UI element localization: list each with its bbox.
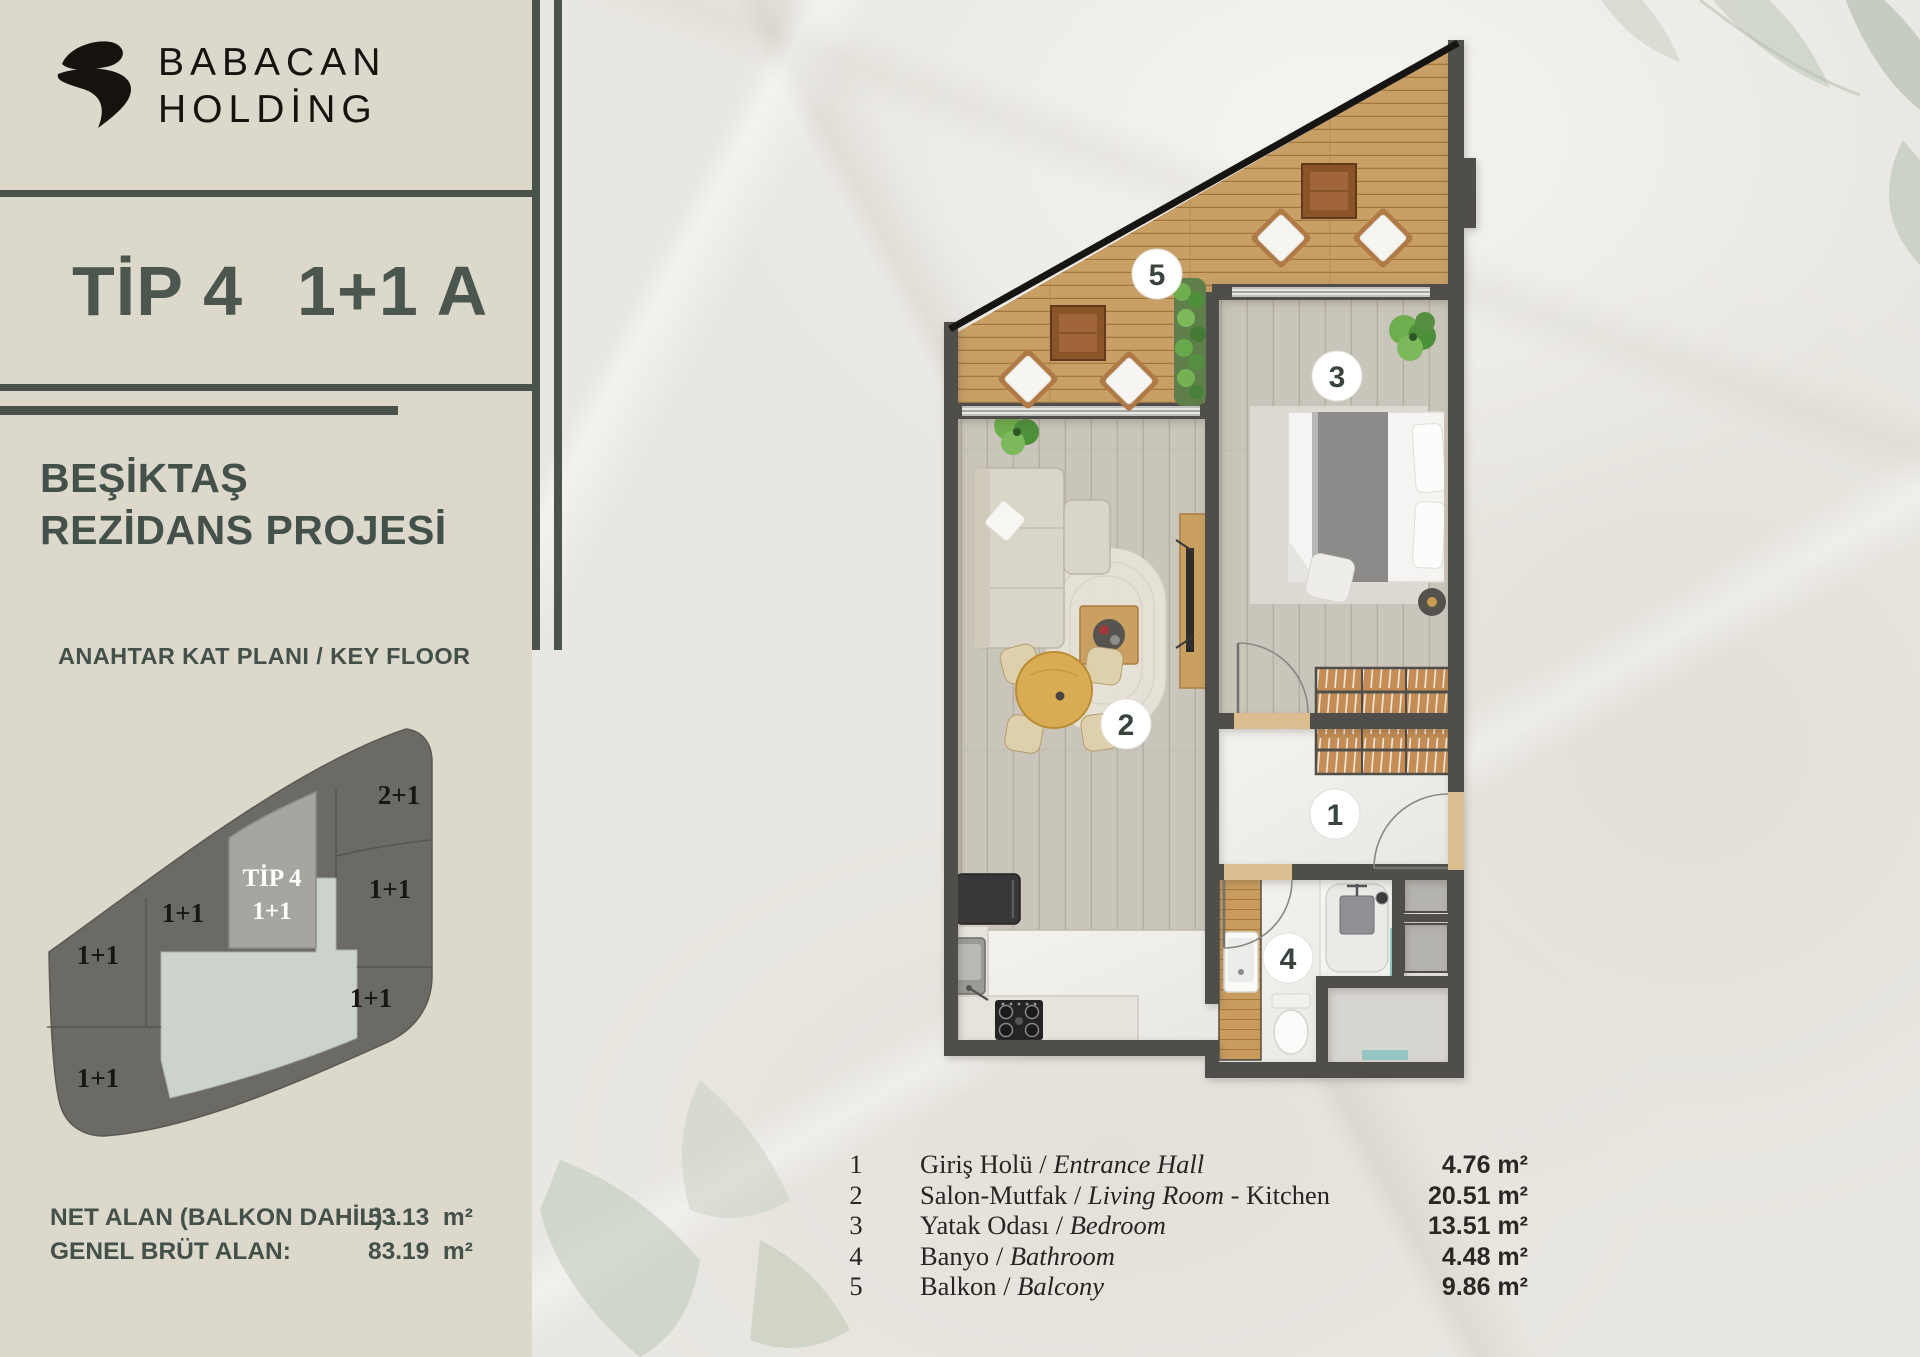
gross-area-label: GENEL BRÜT ALAN: [50,1238,368,1266]
legend-number: 5 [838,1271,874,1302]
leaf-decoration-top-right [1540,0,1920,300]
legend-row: 3 Yatak Odası / Bedroom 13.51 m² [838,1210,1528,1241]
sofa-arm [1064,500,1110,574]
brand-line2: HOLDİNG [158,86,386,133]
project-title: BEŞİKTAŞ REZİDANS PROJESİ [40,452,447,556]
room-legend: 1 Giriş Holü / Entrance Hall 4.76 m² 2 S… [838,1149,1528,1302]
fridge [956,874,1020,924]
dining-table [1016,652,1092,728]
legend-name: Balkon / Balcony [920,1271,1378,1302]
title-box-bottom-line [0,384,537,391]
room-badge-5: 5 [1132,249,1182,299]
pillow [1412,423,1447,493]
door-mat [1362,1050,1408,1060]
key-highlight-label-line1: TİP 4 [242,864,302,892]
project-line2: REZİDANS PROJESİ [40,504,447,556]
title-box-top-line [0,190,537,197]
title-underline [0,406,398,415]
legend-area: 20.51 m² [1378,1182,1528,1211]
brochure-page: BABACAN HOLDİNG TİP 4 1+1 A BEŞİKTAŞ REZ… [0,0,1920,1357]
svg-text:3: 3 [1329,361,1346,394]
unit-variant: 1+1 A [297,251,488,331]
legend-row: 4 Banyo / Bathroom 4.48 m² [838,1241,1528,1272]
legend-row: 5 Balkon / Balcony 9.86 m² [838,1271,1528,1302]
key-unit-label: 1+1 [162,898,204,928]
net-area-label: NET ALAN (BALKON DAHİL) : [50,1204,368,1232]
legend-name: Yatak Odası / Bedroom [920,1210,1378,1241]
legend-row: 2 Salon-Mutfak / Living Room - Kitchen 2… [838,1180,1528,1211]
net-area-value: 53.13 m² [368,1204,473,1232]
unit-type-title: TİP 4 1+1 A [0,197,537,384]
shaft [1404,924,1448,972]
key-unit-label: 1+1 [350,983,392,1013]
legend-area: 4.76 m² [1378,1151,1528,1180]
toilet [1272,994,1310,1008]
legend-number: 4 [838,1241,874,1272]
key-highlight-label-line2: 1+1 [252,898,291,925]
vertical-garden [1173,278,1206,406]
key-unit-label: 1+1 [77,940,119,970]
legend-area: 13.51 m² [1378,1212,1528,1241]
svg-text:4: 4 [1280,943,1297,976]
company-logo: BABACAN HOLDİNG [56,36,386,136]
svg-text:5: 5 [1149,259,1166,292]
legend-area: 9.86 m² [1378,1273,1528,1302]
room-badge-2: 2 [1101,699,1151,749]
room-badge-4: 4 [1263,933,1313,983]
legend-name: Giriş Holü / Entrance Hall [920,1149,1378,1180]
unit-type: TİP 4 [72,251,243,331]
hall-furniture [1316,726,1450,774]
room-badge-3: 3 [1312,351,1362,401]
legend-number: 2 [838,1180,874,1211]
svg-text:2: 2 [1118,709,1135,742]
key-unit-label: 1+1 [369,874,411,904]
key-unit-label: 2+1 [378,780,420,810]
legend-area: 4.48 m² [1378,1243,1528,1272]
gross-area-value: 83.19 m² [368,1238,473,1266]
leaf-decoration-bottom-left [520,1040,880,1357]
legend-name: Banyo / Bathroom [920,1241,1378,1272]
legend-number: 1 [838,1149,874,1180]
separator-vertical-line-2 [554,0,562,650]
pouf [1304,552,1356,604]
project-line1: BEŞİKTAŞ [40,452,447,504]
floor-plan: 1 2 3 4 5 [930,25,1500,1095]
legend-number: 3 [838,1210,874,1241]
shaft [1404,878,1448,912]
key-floor-plan: 2+1 1+1 1+1 1+1 1+1 1+1 TİP 4 1+1 [30,690,450,1160]
area-summary: NET ALAN (BALKON DAHİL) : 53.13 m² GENEL… [50,1201,473,1269]
key-plan-caption: ANAHTAR KAT PLANI / KEY FLOOR [58,643,470,670]
svg-text:1: 1 [1327,799,1344,832]
room-badge-1: 1 [1310,789,1360,839]
legend-row: 1 Giriş Holü / Entrance Hall 4.76 m² [838,1149,1528,1180]
pillow [1412,501,1445,568]
legend-name: Salon-Mutfak / Living Room - Kitchen [920,1180,1378,1211]
brand-line1: BABACAN [158,39,386,86]
key-unit-label: 1+1 [77,1063,119,1093]
logo-b-mark-icon [56,36,142,136]
